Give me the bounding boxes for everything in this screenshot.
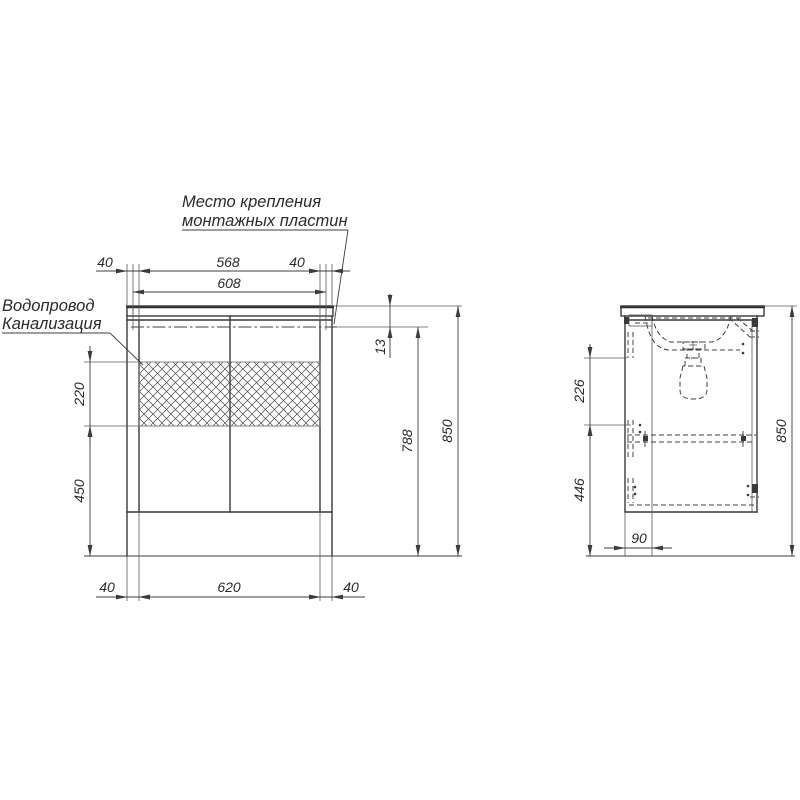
side-view: 226 446 90 850	[571, 306, 797, 556]
shelf-hidden-lines	[627, 431, 756, 447]
cabinet-body	[127, 316, 332, 556]
front-top-dimensions: 40 568 40 608	[96, 254, 350, 292]
vanity-dimension-drawing: 40 568 40 608 220 450 13 788 850	[0, 0, 800, 800]
dim-bottom-left-offset: 40	[99, 579, 115, 595]
drain-flange	[683, 342, 705, 349]
dim-total-height-side: 850	[773, 419, 789, 443]
dim-lower-section-side: 446	[571, 478, 587, 502]
dim-plate-span: 568	[216, 254, 240, 270]
countertop-side	[620, 306, 765, 316]
back-panel-hidden-lines	[628, 332, 633, 503]
water-supply-label: Водопровод	[2, 297, 94, 315]
shelf-screw	[643, 436, 648, 441]
annotations: Место крепления монтажных пластин Водопр…	[2, 193, 348, 365]
dim-total-height-front: 850	[439, 419, 455, 443]
dim-hatch-height: 220	[71, 382, 87, 407]
front-view: 40 568 40 608 220 450 13 788 850	[71, 254, 462, 601]
dim-depth-offset: 90	[631, 530, 647, 546]
washbasin-bowl	[645, 316, 753, 399]
dim-body-width: 620	[217, 579, 241, 595]
dim-top-offset: 13	[372, 339, 388, 355]
shelf-screw	[741, 436, 746, 441]
siphon-neck	[685, 358, 701, 366]
dim-lower-section: 450	[71, 479, 87, 503]
front-right-dimensions: 13 788 850	[372, 294, 458, 556]
side-dimensions: 226 446 90 850	[571, 306, 792, 556]
dim-upper-section: 226	[571, 379, 587, 404]
dim-outer-span: 608	[217, 275, 241, 291]
front-left-dimensions: 220 450	[71, 346, 90, 556]
mounting-note-line2: монтажных пластин	[182, 212, 348, 230]
technical-drawing-page: 40 568 40 608 220 450 13 788 850	[0, 0, 800, 800]
countertop	[126, 306, 334, 316]
dim-bottom-right-offset: 40	[343, 579, 359, 595]
dim-mount-height: 788	[399, 429, 415, 453]
dim-top-right-offset: 40	[289, 254, 305, 270]
siphon-trap	[680, 366, 707, 399]
service-window-hatch	[139, 362, 320, 426]
mounting-note-leader	[334, 230, 348, 324]
front-bottom-dimensions: 40 620 40	[96, 579, 365, 597]
sewerage-label: Канализация	[2, 315, 102, 333]
dim-top-left-offset: 40	[97, 254, 113, 270]
mounting-note-line1: Место крепления	[182, 193, 321, 211]
